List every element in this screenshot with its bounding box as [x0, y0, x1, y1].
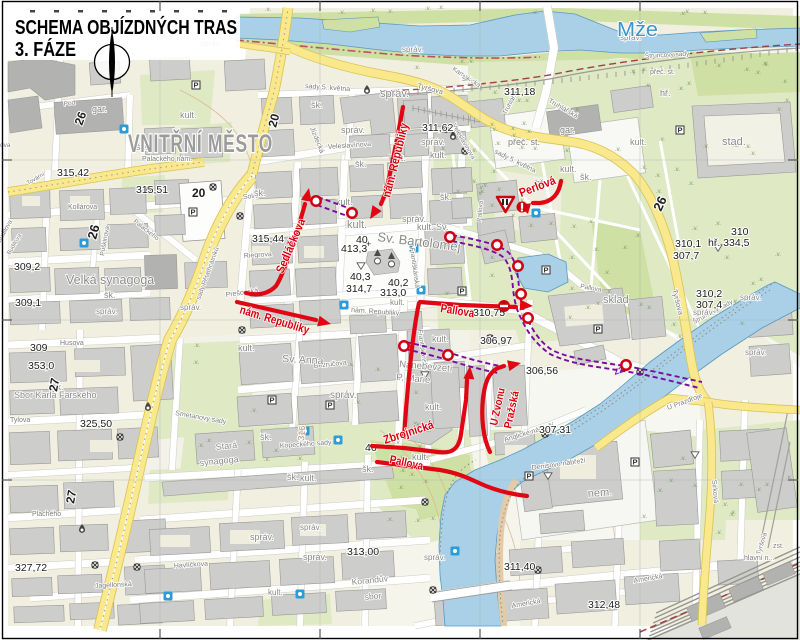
svg-text:306,97: 306,97	[480, 335, 512, 347]
svg-text:27: 27	[63, 489, 79, 505]
svg-text:.v.: .v.	[375, 367, 381, 373]
svg-text:SCHEMA OBJÍZDNÝCH TRAS: SCHEMA OBJÍZDNÝCH TRAS	[15, 15, 237, 39]
svg-text:.v.: .v.	[564, 148, 570, 154]
svg-text:P: P	[269, 396, 274, 405]
svg-text:.v.: .v.	[674, 167, 680, 173]
svg-text:.v.: .v.	[750, 281, 756, 287]
svg-text:.v.: .v.	[521, 121, 527, 127]
svg-text:.v.: .v.	[703, 144, 709, 150]
svg-text:hř.: hř.	[660, 88, 671, 98]
svg-text:314,7: 314,7	[346, 283, 372, 295]
svg-text:sbor: sbor	[364, 590, 382, 602]
svg-text:.v.: .v.	[297, 456, 303, 462]
svg-text:.v.: .v.	[677, 334, 683, 340]
svg-text:.v.: .v.	[569, 255, 575, 261]
svg-text:správ.: správ.	[424, 553, 445, 562]
svg-text:Husova: Husova	[60, 340, 84, 347]
svg-text:.v.: .v.	[686, 81, 692, 87]
svg-text:40,3: 40,3	[350, 271, 371, 283]
svg-text:P: P	[327, 401, 332, 410]
svg-text:.v.: .v.	[273, 448, 279, 454]
svg-text:nem.: nem.	[587, 486, 612, 500]
svg-text:.v.: .v.	[548, 221, 554, 227]
svg-text:P: P	[595, 325, 600, 334]
svg-text:.v.: .v.	[510, 126, 516, 132]
svg-text:311,62: 311,62	[422, 122, 453, 134]
svg-text:.v.: .v.	[194, 343, 200, 349]
svg-text:.v.: .v.	[641, 165, 647, 171]
svg-text:kult.: kult.	[430, 150, 447, 160]
svg-text:.v.: .v.	[193, 360, 199, 366]
svg-text:.v.: .v.	[251, 408, 257, 414]
svg-text:.v.: .v.	[688, 181, 694, 187]
svg-text:.v.: .v.	[489, 203, 495, 209]
svg-text:správ.: správ.	[745, 348, 766, 357]
svg-text:P: P	[677, 126, 682, 135]
svg-text:.v.: .v.	[423, 479, 429, 485]
svg-text:307,31: 307,31	[539, 424, 571, 436]
svg-text:315,44: 315,44	[252, 233, 284, 245]
svg-text:.v.: .v.	[775, 252, 781, 258]
svg-text:.v.: .v.	[716, 530, 722, 536]
svg-text:.v.: .v.	[387, 9, 393, 15]
svg-text:správ.: správ.	[250, 532, 274, 542]
svg-text:.v.: .v.	[489, 273, 495, 279]
svg-text:přeč. st.: přeč. st.	[650, 69, 675, 76]
svg-text:.v.: .v.	[702, 10, 708, 16]
svg-text:kult.: kult.	[268, 588, 283, 597]
svg-text:.v.: .v.	[641, 67, 647, 73]
svg-text:kult.: kult.	[347, 219, 367, 231]
svg-text:správ.: správ.	[96, 307, 117, 316]
svg-text:přeč. st.: přeč. st.	[508, 137, 540, 147]
svg-text:27: 27	[46, 377, 62, 393]
svg-text:311,18: 311,18	[504, 86, 535, 98]
svg-text:.v.: .v.	[265, 7, 271, 13]
svg-text:.v.: .v.	[567, 315, 573, 321]
svg-text:správ.: správ.	[421, 137, 445, 147]
svg-text:.v.: .v.	[730, 510, 736, 516]
svg-text:315,42: 315,42	[57, 167, 89, 179]
svg-text:.v.: .v.	[495, 141, 501, 147]
svg-text:správ.: správ.	[180, 303, 201, 312]
svg-text:.v.: .v.	[444, 291, 450, 297]
svg-text:353,0: 353,0	[28, 360, 54, 372]
svg-text:.v.: .v.	[425, 6, 431, 12]
svg-text:správ.: správ.	[402, 45, 423, 54]
svg-text:.v.: .v.	[492, 90, 498, 96]
svg-text:.v.: .v.	[750, 151, 756, 157]
svg-text:Velká synagoga: Velká synagoga	[66, 273, 154, 287]
svg-text:.v.: .v.	[246, 440, 252, 446]
svg-text:.v.: .v.	[680, 456, 686, 462]
svg-text:P: P	[459, 287, 464, 296]
svg-text:šk.: šk.	[287, 472, 299, 482]
svg-text:kult.: kult.	[390, 298, 405, 307]
svg-text:správ.: správ.	[300, 523, 321, 532]
svg-text:309,2: 309,2	[14, 261, 40, 273]
svg-text:315,51: 315,51	[136, 184, 168, 196]
svg-text:.v.: .v.	[615, 147, 621, 153]
svg-text:306,56: 306,56	[526, 365, 558, 377]
svg-text:311,40: 311,40	[504, 561, 535, 573]
svg-text:313,0: 313,0	[380, 287, 406, 299]
svg-text:šk.: šk.	[580, 172, 592, 182]
svg-text:Mže: Mže	[617, 19, 658, 41]
svg-text:.v.: .v.	[430, 516, 436, 522]
svg-text:správ.: správ.	[380, 88, 409, 100]
svg-text:gar.: gar.	[560, 125, 575, 135]
svg-text:.v.: .v.	[724, 255, 730, 261]
svg-text:stad.: stad.	[722, 136, 746, 148]
svg-text:kult.: kult.	[432, 334, 449, 344]
svg-text:kult.: kult.	[425, 402, 442, 412]
svg-text:kult.: kult.	[336, 197, 353, 207]
svg-text:.v.: .v.	[479, 189, 485, 195]
svg-text:ova: ova	[0, 142, 11, 149]
svg-text:.v.: .v.	[692, 483, 698, 489]
svg-text:312,48: 312,48	[588, 599, 620, 611]
svg-text:.v.: .v.	[491, 127, 497, 133]
svg-text:.v.: .v.	[782, 79, 788, 85]
svg-text:.v.: .v.	[571, 224, 577, 230]
svg-text:šk.: šk.	[355, 159, 367, 169]
svg-text:.v.: .v.	[415, 518, 421, 524]
svg-text:správ.: správ.	[402, 214, 426, 224]
svg-text:.v.: .v.	[716, 63, 722, 69]
svg-text:.v.: .v.	[370, 8, 376, 14]
svg-text:P: P	[193, 81, 198, 90]
svg-text:Plachého: Plachého	[32, 511, 61, 518]
svg-text:správ.: správ.	[330, 390, 357, 401]
svg-text:.v.: .v.	[471, 179, 477, 185]
svg-text:správ.: správ.	[341, 125, 365, 135]
svg-text:.v.: .v.	[348, 362, 354, 368]
svg-text:.v.: .v.	[524, 98, 530, 104]
svg-text:kult.: kult.	[180, 110, 197, 120]
svg-text:.v.: .v.	[409, 472, 415, 478]
svg-text:.v.: .v.	[491, 169, 497, 175]
svg-text:.v.: .v.	[585, 305, 591, 311]
svg-text:3. FÁZE: 3. FÁZE	[15, 38, 76, 61]
svg-text:šk.: šk.	[362, 464, 374, 474]
svg-text:.v.: .v.	[655, 173, 661, 179]
svg-text:20: 20	[192, 186, 206, 200]
svg-text:šk.: šk.	[311, 100, 323, 110]
svg-text:313,00: 313,00	[347, 546, 379, 558]
svg-text:325,50: 325,50	[80, 418, 112, 430]
svg-text:.v.: .v.	[671, 322, 677, 328]
svg-text:P: P	[632, 458, 637, 467]
svg-text:.v.: .v.	[776, 107, 782, 113]
svg-text:.v.: .v.	[656, 189, 662, 195]
svg-text:hlavní n...: hlavní n...	[744, 555, 774, 562]
svg-text:.v.: .v.	[593, 247, 599, 253]
svg-text:šk.: šk.	[462, 74, 472, 83]
svg-text:.v.: .v.	[588, 219, 594, 225]
svg-text:309,1: 309,1	[15, 297, 41, 309]
svg-text:.v.: .v.	[510, 213, 516, 219]
svg-text:40: 40	[356, 234, 368, 246]
svg-text:šk.: šk.	[254, 188, 266, 198]
svg-text:.v.: .v.	[722, 502, 728, 508]
svg-text:.v.: .v.	[756, 487, 762, 493]
svg-text:310,1: 310,1	[675, 238, 701, 250]
svg-text:.v.: .v.	[528, 223, 534, 229]
svg-text:.v.: .v.	[762, 61, 768, 67]
svg-text:P: P	[543, 266, 548, 275]
svg-text:.v.: .v.	[758, 277, 764, 283]
svg-text:.v.: .v.	[645, 83, 651, 89]
svg-text:kult.: kult.	[630, 137, 647, 147]
svg-text:kult.: kult.	[300, 473, 317, 483]
svg-text:.v.: .v.	[646, 305, 652, 311]
svg-text:.v.: .v.	[745, 144, 751, 150]
svg-text:.v.: .v.	[630, 69, 636, 75]
svg-text:.v.: .v.	[595, 301, 601, 307]
svg-text:.v.: .v.	[198, 443, 204, 449]
svg-text:.v.: .v.	[414, 65, 420, 71]
svg-text:.v.: .v.	[264, 457, 270, 463]
svg-text:P: P	[190, 208, 195, 217]
svg-text:.v.: .v.	[784, 98, 790, 104]
svg-text:P: P	[526, 472, 531, 481]
svg-text:.v.: .v.	[413, 390, 419, 396]
svg-text:správ.: správ.	[303, 552, 327, 562]
svg-text:.v.: .v.	[755, 70, 761, 76]
svg-text:.v.: .v.	[206, 438, 212, 444]
svg-text:.v.: .v.	[668, 478, 674, 484]
svg-text:.v.: .v.	[569, 286, 575, 292]
svg-text:.v.: .v.	[496, 187, 502, 193]
svg-text:.v.: .v.	[738, 482, 744, 488]
svg-text:.v.: .v.	[692, 226, 698, 232]
svg-text:.v.: .v.	[764, 482, 770, 488]
svg-text:gar.: gar.	[92, 104, 107, 114]
svg-text:sklad: sklad	[603, 294, 629, 306]
svg-text:Sv. Anna: Sv. Anna	[282, 353, 324, 367]
svg-text:.v.: .v.	[638, 302, 644, 308]
svg-text:307,7: 307,7	[673, 250, 699, 262]
svg-text:.v.: .v.	[641, 514, 647, 520]
svg-text:.v.: .v.	[532, 10, 538, 16]
svg-text:.v.: .v.	[339, 10, 345, 16]
svg-text:hř. 334,5: hř. 334,5	[708, 237, 750, 249]
svg-text:.v.: .v.	[468, 59, 474, 65]
svg-text:.v.: .v.	[526, 129, 532, 135]
svg-text:.v.: .v.	[657, 488, 663, 494]
svg-text:.v.: .v.	[715, 221, 721, 227]
svg-text:šk.: šk.	[104, 290, 116, 300]
svg-text:.v.: .v.	[684, 9, 690, 15]
svg-text:.v.: .v.	[489, 255, 495, 261]
svg-text:.v.: .v.	[604, 270, 610, 276]
svg-text:.v.: .v.	[622, 245, 628, 251]
svg-text:.v.: .v.	[438, 5, 444, 11]
svg-text:šk.: šk.	[440, 192, 452, 202]
svg-text:kult.: kult.	[238, 343, 255, 353]
svg-text:Tylova: Tylova	[10, 417, 30, 424]
svg-text:307,4: 307,4	[696, 299, 722, 311]
svg-text:.v.: .v.	[744, 67, 750, 73]
svg-text:327,72: 327,72	[15, 562, 47, 574]
svg-text:kult.: kult.	[560, 164, 577, 174]
svg-text:.v.: .v.	[659, 137, 665, 143]
svg-text:.v.: .v.	[398, 485, 404, 491]
svg-text:Kollárova: Kollárova	[68, 204, 97, 211]
svg-text:šk.: šk.	[260, 432, 272, 442]
svg-text:.v.: .v.	[516, 98, 522, 104]
svg-text:.v.: .v.	[739, 321, 745, 327]
svg-text:.v.: .v.	[459, 59, 465, 65]
svg-text:zst.: zst.	[773, 543, 784, 550]
svg-text:.v.: .v.	[387, 517, 393, 523]
svg-text:.v.: .v.	[678, 86, 684, 92]
svg-text:.v.: .v.	[455, 189, 461, 195]
svg-text:VNITŘNÍ MĚSTO: VNITŘNÍ MĚSTO	[128, 128, 273, 158]
svg-text:.v.: .v.	[635, 233, 641, 239]
svg-text:309: 309	[30, 342, 48, 354]
svg-text:správ.: správ.	[740, 293, 761, 302]
svg-text:316: 316	[296, 425, 307, 441]
